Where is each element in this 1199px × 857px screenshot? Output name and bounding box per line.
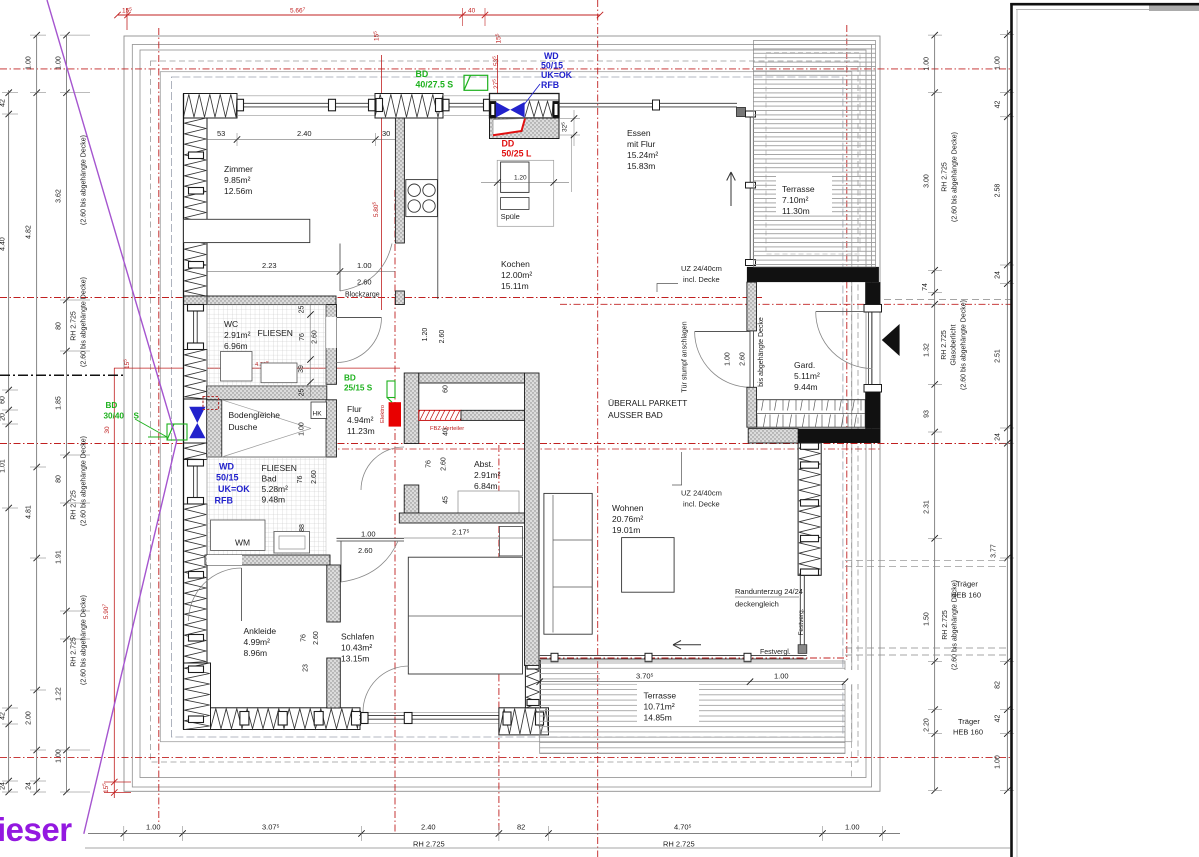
svg-text:4.82: 4.82 [26, 225, 33, 239]
svg-text:incl. Decke: incl. Decke [683, 275, 720, 284]
svg-text:40/27.5 S: 40/27.5 S [416, 80, 454, 90]
svg-text:7.10m²: 7.10m² [782, 195, 809, 205]
svg-text:Bodengleiche: Bodengleiche [229, 410, 281, 420]
svg-text:15.11m: 15.11m [501, 281, 529, 291]
svg-text:Träger: Träger [956, 580, 978, 589]
svg-text:Festvergl.: Festvergl. [760, 649, 791, 656]
svg-text:Glasoberlicht: Glasoberlicht [951, 325, 958, 366]
svg-text:Schlafen: Schlafen [341, 632, 374, 642]
svg-text:13.15m: 13.15m [341, 654, 369, 664]
svg-text:FLIESEN: FLIESEN [262, 463, 297, 473]
svg-text:Elektro: Elektro [380, 405, 386, 423]
svg-text:42: 42 [0, 99, 7, 107]
svg-text:8.96m: 8.96m [244, 648, 268, 658]
svg-text:RFB: RFB [541, 80, 559, 90]
svg-text:3.77: 3.77 [991, 544, 998, 558]
svg-text:1.00: 1.00 [924, 57, 931, 71]
svg-text:1.00: 1.00 [26, 56, 33, 70]
svg-text:RH 2.725: RH 2.725 [413, 840, 445, 849]
svg-text:2.60: 2.60 [311, 470, 318, 484]
svg-text:82: 82 [995, 681, 1002, 689]
svg-text:1.20: 1.20 [422, 328, 429, 342]
svg-text:2.60: 2.60 [313, 631, 320, 645]
svg-text:6.84m: 6.84m [474, 481, 498, 491]
svg-text:2.91m²: 2.91m² [224, 330, 251, 340]
svg-text:30: 30 [382, 129, 390, 138]
svg-text:24: 24 [995, 433, 1002, 441]
svg-text:24: 24 [995, 271, 1002, 279]
svg-text:Flur: Flur [347, 404, 362, 414]
svg-text:53: 53 [217, 129, 225, 138]
svg-text:45: 45 [442, 496, 449, 504]
svg-text:1.00: 1.00 [725, 352, 732, 366]
svg-text:Gard.: Gard. [794, 360, 815, 370]
svg-text:1.00: 1.00 [774, 672, 789, 681]
svg-text:ÜBERALL PARKETT: ÜBERALL PARKETT [608, 398, 687, 408]
svg-text:4.99m²: 4.99m² [244, 637, 271, 647]
svg-text:20.76m²: 20.76m² [612, 514, 643, 524]
svg-text:42: 42 [0, 712, 7, 720]
svg-text:Spüle: Spüle [501, 212, 520, 221]
svg-text:RH 2.725: RH 2.725 [941, 330, 948, 360]
svg-text:2.58: 2.58 [995, 184, 1002, 198]
svg-text:9.48m: 9.48m [262, 495, 286, 505]
svg-text:11.30m: 11.30m [782, 206, 810, 216]
svg-text:WD: WD [544, 51, 559, 61]
svg-text:mit Flur: mit Flur [627, 139, 656, 149]
svg-text:AUSSER BAD: AUSSER BAD [608, 410, 663, 420]
svg-text:25/15 S: 25/15 S [344, 384, 373, 393]
svg-text:24: 24 [26, 782, 33, 790]
svg-text:1.20: 1.20 [514, 175, 527, 182]
svg-text:24: 24 [0, 782, 7, 790]
svg-text:Wohnen: Wohnen [612, 503, 644, 513]
svg-text:(2.60 bis abgehängte Decke): (2.60 bis abgehängte Decke) [81, 135, 88, 225]
svg-text:RH 2.725: RH 2.725 [663, 840, 695, 849]
svg-text:15.24m²: 15.24m² [627, 150, 658, 160]
svg-text:6.96m: 6.96m [224, 341, 248, 351]
svg-text:RH 2.725: RH 2.725 [71, 637, 78, 667]
svg-text:(2.60 bis abgehängte Decke): (2.60 bis abgehängte Decke) [81, 595, 88, 685]
svg-text:DD: DD [502, 139, 515, 149]
svg-text:RH 2.725: RH 2.725 [942, 610, 949, 640]
svg-text:deckengleich: deckengleich [735, 600, 779, 609]
svg-text:1.00: 1.00 [146, 823, 161, 832]
svg-text:(2.60 bis abgehängte Decke): (2.60 bis abgehängte Decke) [81, 436, 88, 526]
svg-text:RH 2.725: RH 2.725 [942, 162, 949, 192]
svg-text:76: 76 [301, 634, 308, 642]
svg-text:(2.60 bis abgehängte Decke): (2.60 bis abgehängte Decke) [961, 300, 968, 390]
svg-text:76: 76 [299, 333, 306, 341]
svg-text:2.60: 2.60 [441, 457, 448, 471]
svg-text:WC: WC [224, 319, 238, 329]
svg-text:76: 76 [297, 476, 304, 484]
svg-text:Zimmer: Zimmer [224, 164, 253, 174]
svg-text:1.00: 1.00 [56, 56, 63, 70]
svg-text:3.00: 3.00 [924, 174, 931, 188]
svg-text:40: 40 [442, 428, 449, 436]
svg-text:Festverg.: Festverg. [798, 608, 805, 635]
svg-text:23: 23 [303, 664, 310, 672]
svg-text:Randunterzug 24/24: Randunterzug 24/24 [735, 587, 803, 596]
svg-text:2.60: 2.60 [312, 330, 319, 344]
svg-text:4.40: 4.40 [0, 237, 7, 251]
svg-text:UZ 24/40cm: UZ 24/40cm [681, 489, 722, 498]
svg-text:76: 76 [426, 460, 433, 468]
svg-text:2.60: 2.60 [740, 352, 747, 366]
svg-text:30: 30 [104, 426, 111, 434]
svg-text:50/15: 50/15 [541, 61, 563, 71]
svg-text:25: 25 [299, 389, 306, 397]
svg-text:4.81: 4.81 [26, 505, 33, 519]
svg-text:2.40: 2.40 [297, 129, 312, 138]
svg-text:RH 2.725: RH 2.725 [71, 490, 78, 520]
svg-text:UZ 24/40cm: UZ 24/40cm [681, 264, 722, 273]
svg-text:Essen: Essen [627, 128, 651, 138]
svg-text:BD: BD [344, 374, 356, 383]
svg-text:11.23m: 11.23m [347, 426, 375, 436]
svg-text:Dusche: Dusche [229, 422, 258, 432]
svg-text:2.60: 2.60 [358, 546, 373, 555]
svg-text:50/15: 50/15 [216, 473, 239, 483]
svg-text:74: 74 [922, 283, 929, 291]
svg-text:5.28m²: 5.28m² [262, 484, 289, 494]
svg-text:Träger: Träger [958, 717, 980, 726]
svg-text:4.94m²: 4.94m² [347, 415, 374, 425]
svg-text:Bad: Bad [262, 474, 277, 484]
svg-text:88: 88 [299, 524, 306, 532]
svg-text:20: 20 [0, 413, 7, 421]
svg-text:12.56m: 12.56m [224, 186, 252, 196]
svg-text:2.51: 2.51 [995, 349, 1002, 363]
svg-text:2.00: 2.00 [26, 711, 33, 725]
svg-text:2.40: 2.40 [421, 823, 436, 832]
svg-text:25: 25 [299, 306, 306, 314]
svg-text:2.60: 2.60 [357, 278, 372, 287]
svg-text:1.00: 1.00 [361, 530, 376, 539]
svg-text:1.00: 1.00 [357, 261, 372, 270]
svg-text:FLIESEN: FLIESEN [258, 328, 293, 338]
svg-text:Tür stumpf anschlagen: Tür stumpf anschlagen [682, 321, 689, 392]
svg-text:1.91: 1.91 [56, 550, 63, 564]
svg-text:40: 40 [468, 8, 476, 15]
svg-text:Kochen: Kochen [501, 259, 530, 269]
svg-text:1.01: 1.01 [0, 459, 7, 473]
svg-text:HEB 160: HEB 160 [951, 591, 981, 600]
svg-text:Ankleide: Ankleide [244, 626, 277, 636]
svg-text:80: 80 [56, 475, 63, 483]
svg-text:HK: HK [313, 411, 323, 418]
svg-text:2.60: 2.60 [439, 330, 446, 344]
svg-text:2.31: 2.31 [924, 500, 931, 514]
svg-text:42: 42 [995, 101, 1002, 109]
svg-text:(2.60 bis abgehängte Decke): (2.60 bis abgehängte Decke) [81, 277, 88, 367]
svg-text:bis abgehängte Decke: bis abgehängte Decke [758, 317, 765, 387]
svg-text:42: 42 [995, 715, 1002, 723]
svg-text:incl. Decke: incl. Decke [683, 500, 720, 509]
svg-text:60: 60 [0, 396, 7, 404]
svg-text:BD: BD [106, 401, 118, 410]
svg-text:RFB: RFB [215, 496, 234, 506]
svg-text:9.44m: 9.44m [794, 382, 818, 392]
svg-text:Abst.: Abst. [474, 459, 493, 469]
svg-text:12.00m²: 12.00m² [501, 270, 532, 280]
svg-text:2.20: 2.20 [924, 718, 931, 732]
svg-text:3.62: 3.62 [56, 189, 63, 203]
svg-text:2.91m²: 2.91m² [474, 470, 501, 480]
svg-text:14.85m: 14.85m [644, 713, 672, 723]
svg-text:5.11m²: 5.11m² [794, 371, 820, 381]
svg-text:30/40: 30/40 [104, 412, 125, 421]
svg-text:1.50: 1.50 [924, 612, 931, 626]
svg-text:10.71m²: 10.71m² [644, 702, 675, 712]
svg-text:80: 80 [56, 322, 63, 330]
svg-text:10.43m²: 10.43m² [341, 643, 372, 653]
svg-text:WD: WD [219, 462, 234, 472]
svg-text:Terrasse: Terrasse [782, 184, 815, 194]
svg-text:ieser: ieser [0, 811, 72, 848]
svg-text:S: S [134, 412, 140, 421]
svg-text:60: 60 [442, 385, 449, 393]
svg-text:1.00: 1.00 [995, 56, 1002, 70]
svg-text:39: 39 [298, 365, 305, 373]
svg-text:50/25 L: 50/25 L [502, 149, 532, 159]
svg-text:1.00: 1.00 [56, 749, 63, 763]
svg-text:UK=OK: UK=OK [541, 70, 573, 80]
svg-text:1.00: 1.00 [299, 422, 306, 436]
svg-text:2.23: 2.23 [262, 261, 277, 270]
svg-text:1.00: 1.00 [995, 755, 1002, 769]
svg-text:Blockzarge: Blockzarge [345, 292, 380, 299]
svg-text:1.32: 1.32 [924, 343, 931, 357]
svg-text:WM: WM [235, 538, 250, 548]
svg-text:1.85: 1.85 [56, 396, 63, 410]
svg-text:19.01m: 19.01m [612, 525, 640, 535]
svg-text:Terrasse: Terrasse [644, 691, 677, 701]
svg-text:93: 93 [924, 410, 931, 418]
svg-text:(2.60 bis abgehängte Decke): (2.60 bis abgehängte Decke) [952, 132, 959, 222]
svg-text:UK=OK: UK=OK [218, 484, 250, 494]
svg-text:82: 82 [517, 823, 525, 832]
svg-text:15.83m: 15.83m [627, 161, 655, 171]
svg-text:BD: BD [416, 69, 429, 79]
svg-text:9.85m²: 9.85m² [224, 175, 251, 185]
svg-text:1.00: 1.00 [845, 823, 860, 832]
svg-text:HEB 160: HEB 160 [953, 728, 983, 737]
svg-text:1.22: 1.22 [56, 687, 63, 701]
svg-text:RH 2.725: RH 2.725 [71, 311, 78, 341]
